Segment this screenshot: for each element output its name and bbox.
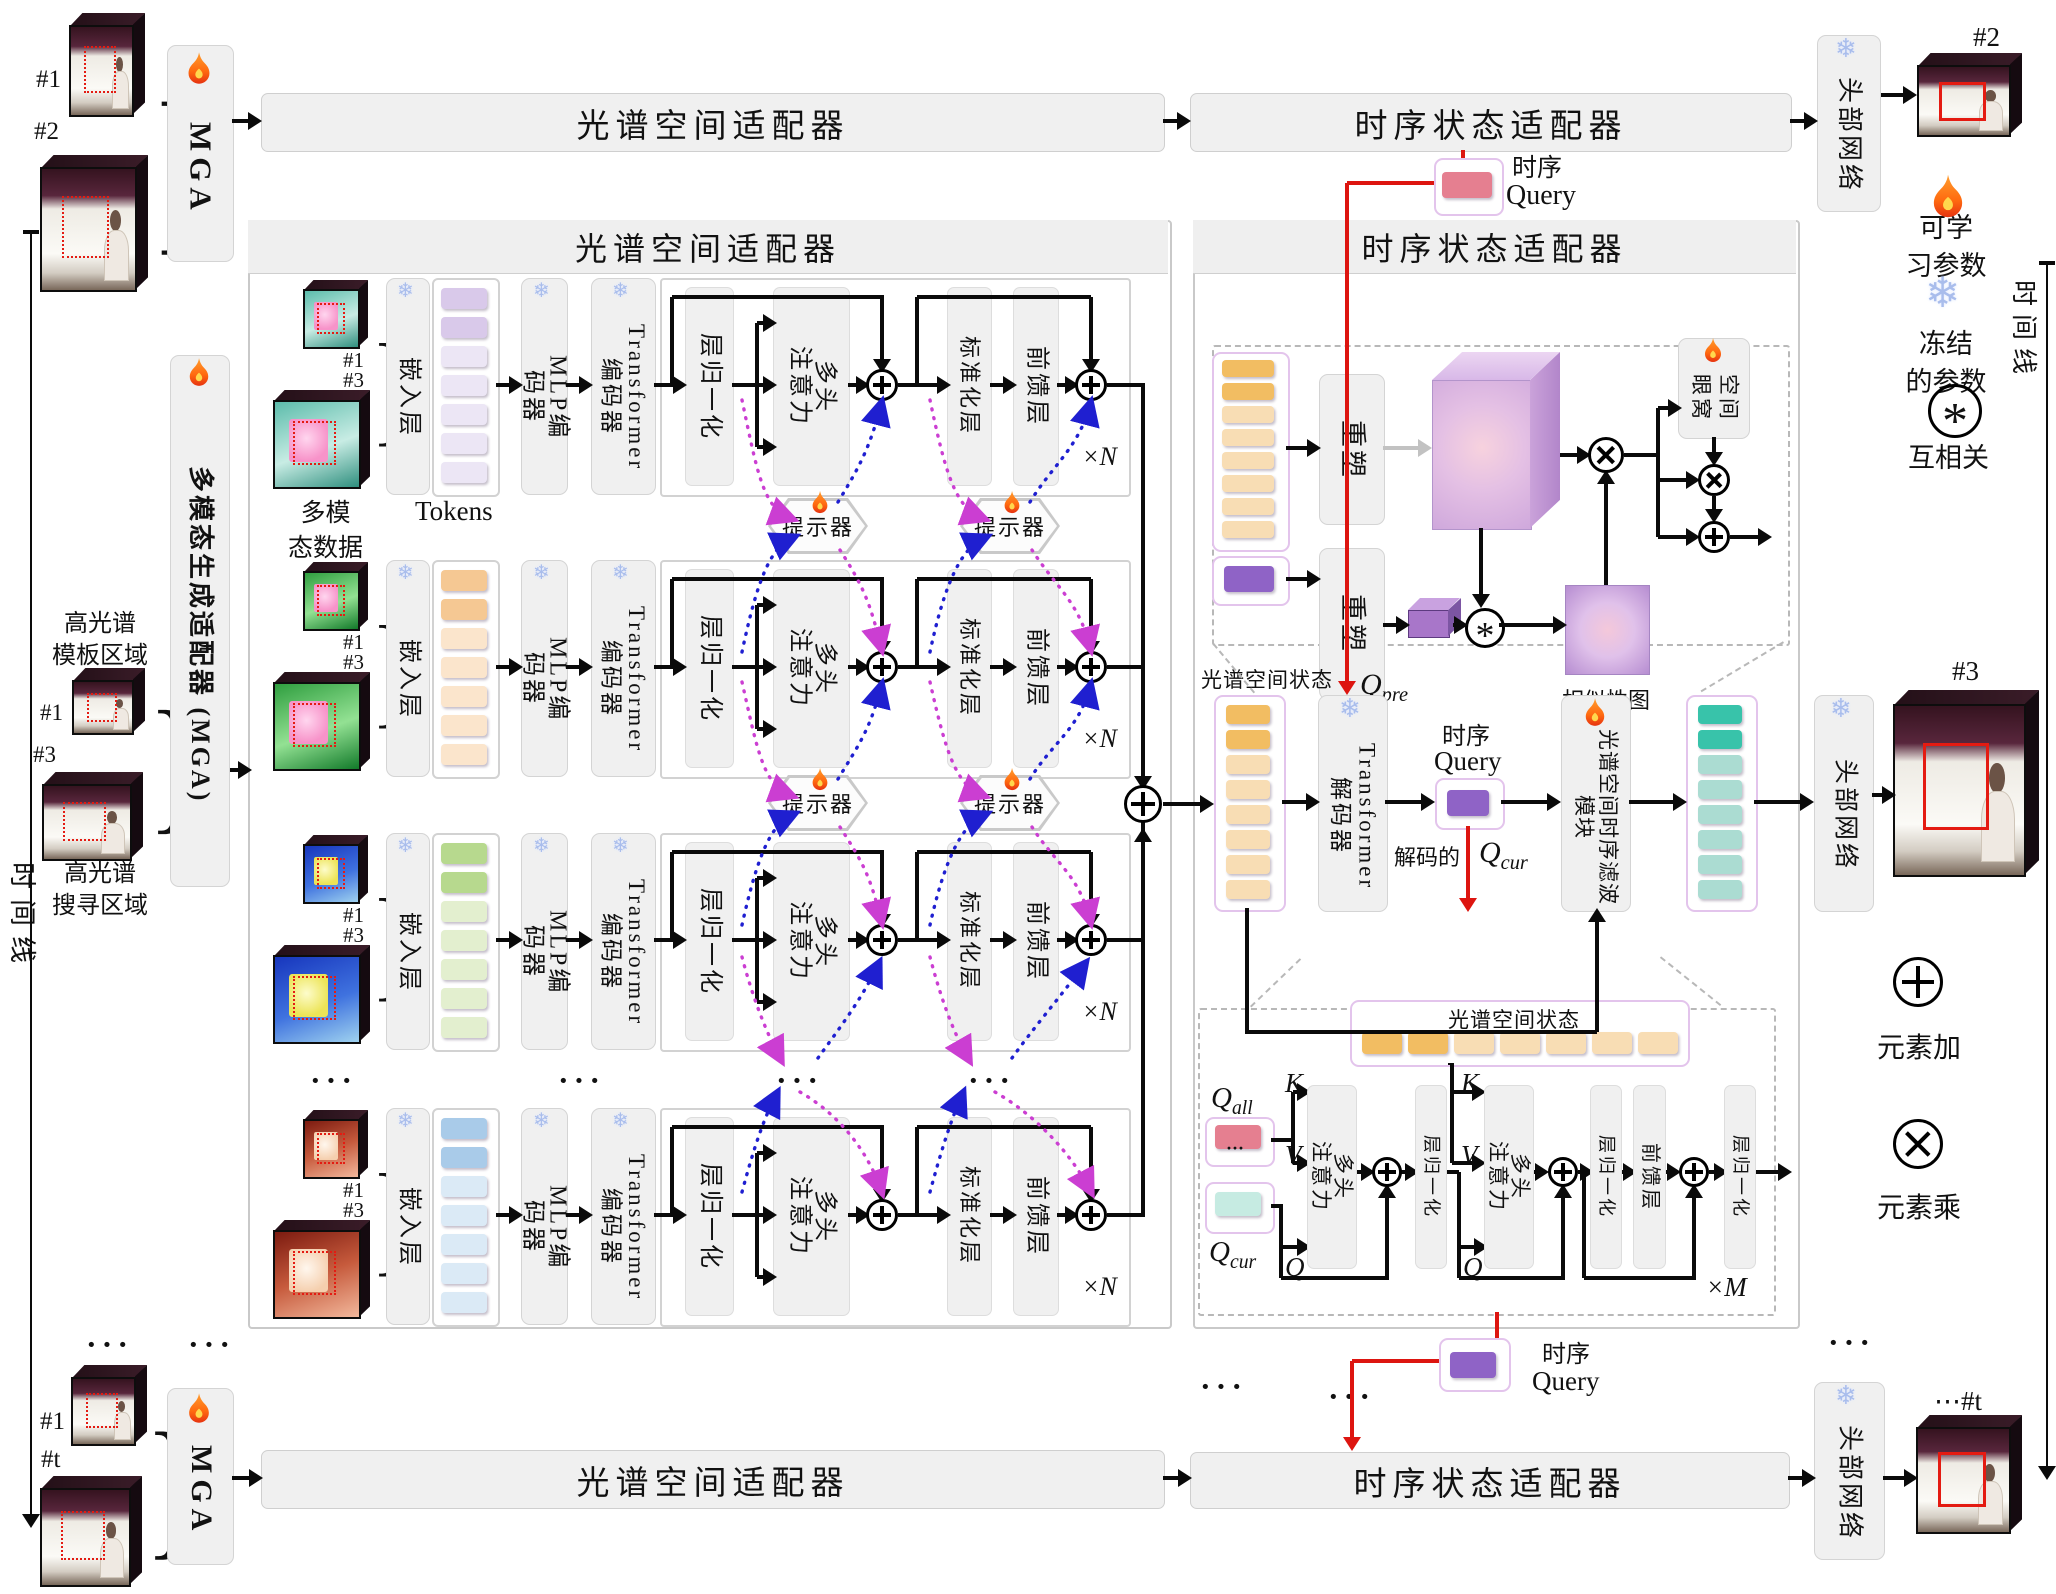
target-box [86,1393,118,1428]
embedding-layer-box: 嵌入层 [386,833,430,1050]
connector-line [1448,1063,1451,1065]
token [1698,755,1742,774]
video-frame-2-thumb [40,155,150,293]
arrowhead [509,658,523,676]
q-cur-token [1215,1192,1261,1216]
connector-line [917,295,1091,298]
arrowhead [579,931,593,949]
feature-cube [1432,352,1560,528]
bottom-query-label-cn: 时序 [1542,1334,1590,1369]
token [441,686,487,707]
connector-line [1281,1276,1389,1279]
spatial-focus-label: 空间眼窝 [1687,374,1742,422]
target-box [1923,743,1988,830]
connector-line [1385,1196,1388,1278]
frame-3-label-mid: #3 [33,742,56,768]
mga-label: MGA [183,1445,218,1536]
modality-frame-3 [273,672,372,772]
token [1638,1032,1678,1054]
connector-line [670,297,673,385]
connector-line [672,577,884,580]
connector-line [1385,800,1423,803]
arrowhead [1535,1163,1549,1181]
head-network-label: 头部网络 [1830,759,1859,871]
snowflake-icon: ❄ [533,281,550,301]
mlp-encoder-box: MLP编码器 [521,833,568,1050]
connector-line [672,295,884,298]
state-label-mid: 光谱空间状态 [1201,664,1333,694]
add-node [1548,1157,1578,1187]
token [1454,1032,1494,1054]
frame-image [303,844,360,904]
connector-line [1457,1172,1460,1247]
connector-line [1286,577,1309,580]
arrowhead [673,376,687,394]
connector-line [915,297,918,385]
ellipsis: ··· [968,1062,1015,1099]
target-box [293,421,336,466]
arrowhead [1472,594,1490,608]
token [441,375,487,396]
architecture-diagram: #1 #2 } MGA 光谱空间适配器 时序状态适配器 头部网络 #2 时序 Q… [0,0,2056,1594]
connector-line [1730,535,1760,538]
token [1698,805,1742,824]
ellipsis: ··· [1200,1368,1247,1405]
template-region-label: 高光谱模板区域 [52,608,148,673]
token [441,930,487,951]
connector-line [732,1213,757,1216]
legend-xcorr-node: * [1928,384,1982,438]
arrowhead [1553,616,1567,634]
temporal-query-label-en: Query [1506,180,1576,212]
token [441,1017,487,1038]
connector-line [1754,1170,1780,1173]
search-region-label: 高光谱搜寻区域 [52,858,148,923]
fire-icon [183,1392,215,1424]
connector-line [1286,446,1309,449]
frame-image [303,571,360,631]
connector-line [30,232,33,1514]
arrowhead [1882,786,1896,804]
connector-line [1501,800,1549,803]
block-sublayer: 多头注意力 [773,569,850,768]
snowflake-icon: ❄ [397,281,414,301]
connector-line [1692,1196,1695,1278]
connector-line [732,665,757,668]
snowflake-icon: ❄ [1925,273,1960,315]
arrowhead [937,658,951,676]
embedding-layer-box: 嵌入层 [386,278,430,495]
xn-label: ×N [1082,724,1117,754]
connector-line [1656,408,1659,537]
snowflake-icon: ❄ [1339,696,1361,722]
connector-line [1107,1213,1145,1216]
target-box [317,1133,345,1164]
transformer-encoder-box: Transformer编码器 [591,833,656,1050]
add-node [866,1199,898,1231]
arrowhead [673,658,687,676]
embedding-layer-box: 嵌入层 [386,560,430,777]
bottom-query-token [1450,1352,1496,1378]
block-sublayer: 标准化层 [947,287,992,486]
filter-module-label: 光谱空间时序滤波模块 [1572,722,1620,911]
ellipsis: ··· [1828,1324,1875,1361]
connector-line [1089,579,1092,643]
block-sublayer: 层归一化 [685,1117,734,1316]
arrowhead [1454,616,1468,634]
frame-image [1893,704,2026,877]
snowflake-icon: ❄ [533,1111,550,1131]
connector-line [880,852,883,916]
filter-module-box: 光谱空间时序滤波模块 [1561,695,1631,912]
token [1226,855,1270,874]
mga-full-label: 多模态生成适配器 (MGA) [185,466,215,803]
arrowhead [1338,681,1356,695]
connector-line [1754,800,1802,803]
token [1226,730,1270,749]
snowflake-icon: ❄ [1835,1383,1857,1409]
xn-label: ×N [1082,442,1117,472]
modality-frame-3 [273,1220,372,1320]
block-sublayer: 前馈层 [1013,1117,1059,1316]
legend-xcorr: 互相关 [1908,436,1989,475]
frame-image [303,289,360,349]
token [441,570,487,591]
arrowhead [1307,439,1321,457]
target-box [1939,82,1986,121]
connector-line [1089,852,1092,916]
arrowhead [1177,112,1191,130]
connector-line [1452,1161,1474,1164]
arrowhead [1588,908,1606,922]
modality-frame-1 [303,562,370,632]
frame-image [71,1377,136,1446]
frame-image [273,955,361,1044]
query-token [1224,566,1274,592]
block-sublayer: 多头注意力 [773,1117,850,1316]
connector-line [1163,802,1202,805]
connector-line [880,297,883,361]
ellipsis: ··· [776,1062,823,1099]
q-cur-label-mid: Qcur [1479,836,1528,875]
connector-line [1584,1276,1696,1279]
token [441,715,487,736]
arrowhead [763,658,777,676]
token [441,744,487,765]
q-all-label: Qall [1211,1082,1253,1120]
frame-2-label: #2 [34,118,59,146]
token [1698,855,1742,874]
similarity-map [1565,585,1650,675]
arrowhead [763,1206,777,1224]
connector-line [1279,1247,1282,1278]
token [441,1205,487,1226]
connector-line [1291,1092,1294,1163]
connector-line [915,1127,918,1215]
transformer-encoder-box: Transformer编码器 [591,560,656,777]
hyperspectral-template-frame [72,668,147,736]
arrowhead [1396,616,1410,634]
token [441,1118,487,1139]
arrowhead [249,1469,263,1487]
connector-line [1629,800,1675,803]
mlp-encoder-box: MLP编码器 [521,278,568,495]
connector-line [670,1127,673,1215]
multiply-node [1698,464,1730,496]
connector-line [672,1125,884,1128]
mid-query-token [1447,790,1489,816]
frame-image [40,167,137,292]
token [1698,780,1742,799]
token [441,872,487,893]
arrowhead [763,438,777,456]
frame-2-out-label: #2 [1973,22,2000,53]
connector-line [1561,1196,1564,1278]
token [1222,360,1274,377]
arrowhead [1778,1163,1792,1181]
arrowhead [1134,828,1152,842]
connector-line [1279,1206,1282,1247]
arrowhead [509,931,523,949]
snowflake-icon: ❄ [1830,696,1852,722]
connector-line [915,579,918,667]
arrowhead [1200,795,1214,813]
frame-image [303,1119,360,1179]
block-sublayer: 层归一化 [1415,1085,1447,1269]
cross-correlation-node: * [1465,608,1505,648]
arrowhead [763,869,777,887]
fire-icon [808,490,832,514]
arrowhead [937,931,951,949]
token [1408,1032,1448,1054]
snowflake-icon: ❄ [397,563,414,583]
target-box [84,46,116,92]
arrowhead [1903,86,1917,104]
token [1592,1032,1632,1054]
legend-add-node [1893,957,1943,1007]
legend-add: 元素加 [1877,1026,1961,1066]
mlp-encoder-box: MLP编码器 [521,1108,568,1325]
target-box [63,802,107,841]
arrowhead [1003,376,1017,394]
arrowhead [509,1206,523,1224]
arrowhead [763,1144,777,1162]
snowflake-icon: ❄ [1835,36,1857,62]
block-sublayer: 层归一化 [1724,1085,1756,1269]
arrowhead [763,1268,777,1286]
frame-image [273,1230,361,1319]
arrowhead [22,1514,40,1528]
block-sublayer: 前馈层 [1013,569,1059,768]
arrowhead [763,993,777,1011]
modality-frame-1 [303,280,370,350]
add-node [1075,1199,1107,1231]
spectral-adapter-bar-bottom: 光谱空间适配器 [261,1450,1165,1509]
arrowhead [509,376,523,394]
token [441,288,487,309]
video-frame-3-result [1893,690,2041,878]
token [1500,1032,1540,1054]
ellipsis: ··· [86,1326,133,1363]
snowflake-icon: ❄ [533,563,550,583]
timeline-label-right: 时间线 [2008,280,2038,382]
connector-line [1383,446,1420,450]
arrowhead [579,658,593,676]
token [1222,406,1274,423]
token [441,433,487,454]
token [1222,521,1274,538]
frame-image [273,400,361,489]
token [1226,805,1270,824]
legend-mul: 元素乘 [1877,1186,1961,1226]
target-box [61,1511,105,1561]
block-sublayer: 前馈层 [1013,287,1059,486]
token [1222,475,1274,492]
arrowhead [248,112,262,130]
arrowhead [579,376,593,394]
token [441,1292,487,1313]
frame-image [40,1488,131,1587]
connector-line [1881,93,1905,96]
connector-line [1450,1063,1453,1163]
arrowhead [1306,793,1320,811]
token [1226,880,1270,899]
arrowhead [1003,658,1017,676]
token [441,959,487,980]
token [441,1147,487,1168]
target-box [87,693,118,721]
token [441,901,487,922]
target-box [62,196,109,258]
add-node [1679,1157,1709,1187]
modality-frame-1 [303,1110,370,1180]
mid-query-label-en: Query [1434,746,1501,777]
connector-line [1352,1359,1441,1363]
connector-line [1089,1127,1092,1191]
target-box [293,703,336,748]
arrowhead [238,761,252,779]
snowflake-icon: ❄ [612,563,629,583]
frame-3-label: #3 [343,923,364,948]
connector-line [1499,623,1555,626]
block-sublayer: 前馈层 [1633,1085,1666,1269]
block-sublayer: 多头注意力 [1484,1085,1534,1269]
token [1226,705,1270,724]
token [1698,730,1742,749]
token [441,628,487,649]
arrowhead [1003,931,1017,949]
arrowhead [579,1206,593,1224]
arrowhead [1418,439,1432,457]
token [441,346,487,367]
modality-frame-1 [303,835,370,905]
fire-icon [1700,337,1726,363]
connector-line [1582,1172,1585,1278]
arrowhead [2038,1466,2056,1480]
connector-line [880,1127,883,1191]
timeline-label-left: 时间线 [6,862,37,973]
frame-3-label: #3 [343,368,364,393]
arrowhead [763,596,777,614]
fire-icon [184,357,214,387]
token [1362,1032,1402,1054]
fire-icon [182,51,216,85]
mga-full-box: 多模态生成适配器 (MGA) [170,355,230,887]
arrowhead [673,931,687,949]
transformer-decoder-label: Transformer解码器 [1327,743,1380,890]
connector-line [917,1125,1091,1128]
merge-add-node [1124,785,1162,823]
connector-line [1247,1030,1597,1033]
bar-title: 光谱空间适配器 [577,99,850,147]
add-node [1075,651,1107,683]
xn-label: ×N [1082,997,1117,1027]
connector-line [917,577,1091,580]
frame-image [42,784,132,861]
frame-image [1917,65,2011,137]
xm-label: ×M [1706,1272,1747,1303]
token [1698,705,1742,724]
connector-line [1604,482,1607,585]
arrowhead [1003,1206,1017,1224]
token [441,1176,487,1197]
connector-line [1107,383,1145,386]
spectral-adapter-panel-header: 光谱空间适配器 [248,220,1168,274]
snowflake-icon: ❄ [533,836,550,856]
connector-line [1245,908,1248,1034]
connector-line [1107,938,1145,941]
target-box [293,976,336,1021]
add-node [866,651,898,683]
multimodal-data-label: 多模态数据 [288,496,363,566]
arrowhead [1758,528,1772,546]
arrowhead [1804,112,1818,130]
arrowhead [1802,1469,1816,1487]
token [1222,452,1274,469]
transformer-encoder-box: Transformer编码器 [591,278,656,495]
frame-image [72,680,134,735]
connector-line [672,850,884,853]
head-network-label: 头部网络 [1835,1425,1865,1541]
frame-3-label: #3 [343,650,364,675]
fire-icon [1580,697,1610,727]
legend-mul-node [1893,1119,1943,1169]
temporal-adapter-bar-top: 时序状态适配器 [1190,93,1792,152]
video-frame-t-result [1916,1415,2024,1535]
token [1226,755,1270,774]
hyperspectral-search-frame [42,772,145,862]
connector-line [732,383,757,386]
head-network-mid: 头部网络 [1814,695,1874,912]
block-sublayer: 多头注意力 [773,287,850,486]
bottom-query-label-en: Query [1532,1366,1599,1397]
arrowhead [1459,898,1477,912]
video-frame-1-thumb-bottom [71,1365,149,1447]
connector-line [1595,920,1598,1032]
q-cur-label-bottom: Qcur [1209,1236,1256,1274]
connector-line [1452,1090,1474,1093]
arrowhead [1178,1469,1192,1487]
temporal-adapter-panel-header: 时序状态适配器 [1193,220,1796,274]
block-sublayer: 标准化层 [947,842,992,1041]
tokens-label: Tokens [415,496,493,527]
frame-t-out-label: ⋯#t [1934,1386,1982,1417]
temporal-adapter-bar-bottom: 时序状态适配器 [1190,1452,1790,1509]
target-box [317,858,345,889]
transformer-decoder-box: Transformer解码器 [1318,695,1388,912]
block-sublayer: 标准化层 [947,1117,992,1316]
spectral-adapter-bar-top: 光谱空间适配器 [261,93,1165,152]
